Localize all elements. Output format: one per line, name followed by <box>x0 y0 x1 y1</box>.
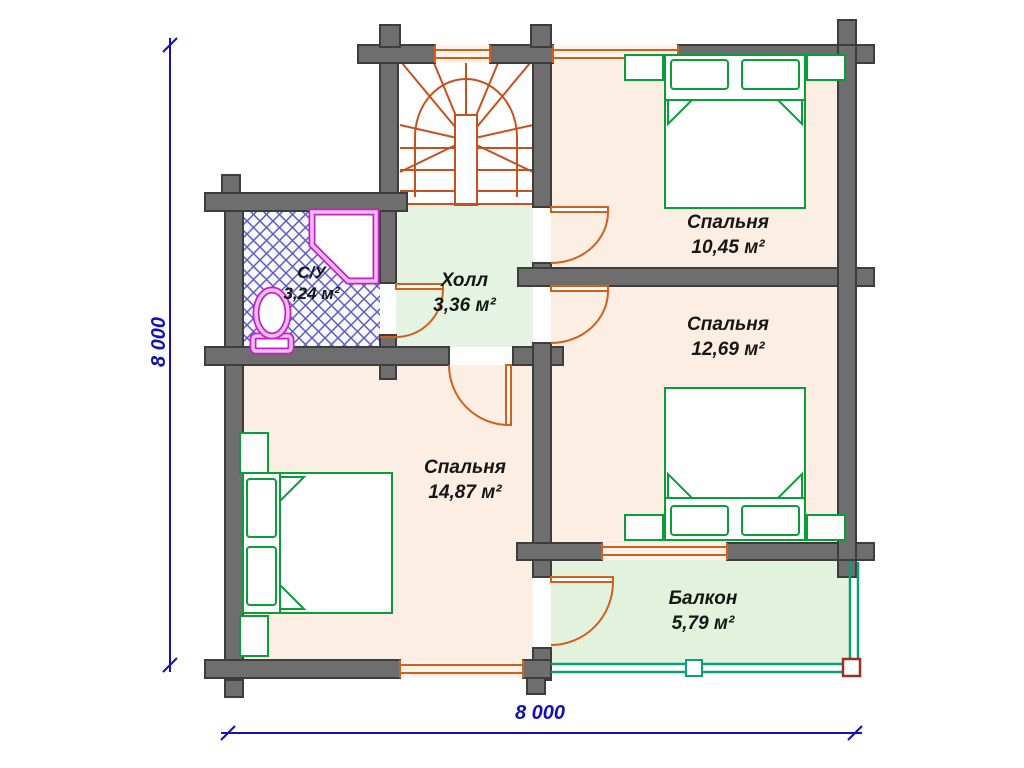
wall-segment <box>517 543 602 560</box>
pillow <box>247 479 276 537</box>
room-area: 3,24 м² <box>243 283 380 304</box>
log-end <box>838 560 856 577</box>
log-end <box>527 678 545 694</box>
room-area: 12,69 м² <box>628 337 828 362</box>
bedroom3-window <box>400 660 523 678</box>
wall-segment <box>380 211 396 283</box>
room-name: Спальня <box>628 312 828 337</box>
room-label-bedroom3: Спальня 14,87 м² <box>365 455 565 505</box>
room-label-bedroom1: Спальня 10,45 м² <box>628 210 828 260</box>
pillow <box>742 60 799 89</box>
door-leaf <box>551 577 613 582</box>
stair-window <box>435 45 490 63</box>
nightstand <box>240 616 268 656</box>
pillow <box>742 506 799 535</box>
stair-newel <box>455 115 477 205</box>
room-name: Спальня <box>628 210 828 235</box>
height-dimension-label: 8 000 <box>148 282 172 402</box>
room-name: Балкон <box>603 586 803 611</box>
log-end <box>531 25 551 47</box>
wall-segment <box>838 45 856 560</box>
door-leaf <box>551 286 608 291</box>
floor-plan-canvas: Спальня 10,45 м² Спальня 12,69 м² Спальн… <box>0 0 1024 768</box>
wall-segment <box>380 63 398 193</box>
width-dimension-label: 8 000 <box>440 702 640 725</box>
room-label-hall: Холл 3,36 м² <box>396 268 533 318</box>
log-end <box>222 175 240 193</box>
pillow <box>247 547 276 605</box>
pillow <box>671 506 728 535</box>
nightstand <box>625 55 663 80</box>
nightstand <box>240 433 268 473</box>
wall-segment <box>205 193 407 211</box>
staircase <box>396 63 533 205</box>
railing-corner-post <box>843 659 860 676</box>
railing-post <box>686 660 702 676</box>
pillow <box>671 60 728 89</box>
room-name: С/У <box>243 262 380 283</box>
log-end <box>225 680 243 697</box>
room-name: Холл <box>396 268 533 293</box>
nightstand <box>807 55 845 80</box>
room-name: Спальня <box>365 455 565 480</box>
log-end <box>380 25 400 47</box>
log-end <box>380 365 396 379</box>
wall-segment <box>533 63 551 207</box>
door-leaf <box>506 365 511 425</box>
room-area: 3,36 м² <box>396 293 533 318</box>
room-area: 14,87 м² <box>365 480 565 505</box>
balcony-window <box>602 543 727 560</box>
wall-segment <box>523 660 551 678</box>
wall-segment <box>205 660 400 678</box>
wall-segment <box>518 268 874 286</box>
nightstand <box>807 515 845 540</box>
log-end <box>838 20 856 47</box>
nightstand <box>625 515 663 540</box>
room-label-bathroom: С/У 3,24 м² <box>243 262 380 305</box>
room-area: 5,79 м² <box>603 611 803 636</box>
room-label-bedroom2: Спальня 12,69 м² <box>628 312 828 362</box>
room-area: 10,45 м² <box>628 235 828 260</box>
wall-segment <box>205 347 449 365</box>
door-leaf <box>551 207 608 212</box>
room-label-balcony: Балкон 5,79 м² <box>603 586 803 636</box>
